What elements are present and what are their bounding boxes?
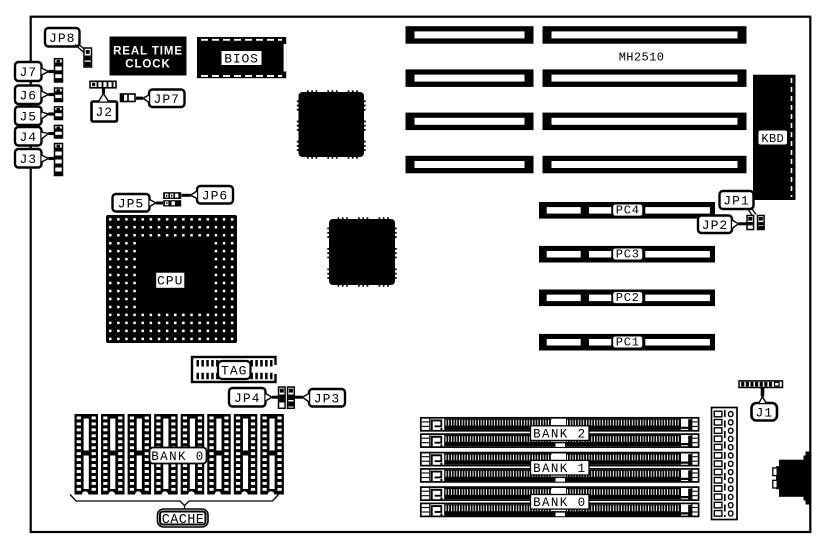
svg-text:BANK 2: BANK 2 xyxy=(533,427,586,441)
svg-text:J4: J4 xyxy=(19,130,37,145)
svg-text:BANK 0: BANK 0 xyxy=(533,496,586,510)
svg-text:PC3: PC3 xyxy=(616,248,640,262)
svg-text:CLOCK: CLOCK xyxy=(125,59,170,71)
svg-text:PC1: PC1 xyxy=(616,336,640,350)
svg-text:KBD: KBD xyxy=(761,132,784,146)
svg-text:J7: J7 xyxy=(19,65,37,80)
svg-text:JP2: JP2 xyxy=(702,218,728,233)
svg-text:BANK 1: BANK 1 xyxy=(533,462,586,476)
svg-text:BANK 0: BANK 0 xyxy=(151,450,204,464)
svg-text:JP4: JP4 xyxy=(234,391,260,406)
svg-text:PC2: PC2 xyxy=(616,291,640,305)
svg-text:REAL TIME: REAL TIME xyxy=(113,46,183,58)
svg-text:JP7: JP7 xyxy=(154,92,180,107)
svg-text:BIOS: BIOS xyxy=(224,52,258,67)
svg-text:J3: J3 xyxy=(19,152,37,167)
svg-text:JP5: JP5 xyxy=(118,196,144,211)
svg-text:CACHE: CACHE xyxy=(162,513,205,528)
svg-text:J1: J1 xyxy=(755,405,773,420)
svg-text:J6: J6 xyxy=(19,88,37,103)
svg-text:CPU: CPU xyxy=(157,274,183,289)
svg-text:J2: J2 xyxy=(95,105,113,120)
svg-text:MH2510: MH2510 xyxy=(619,51,665,65)
svg-text:JP8: JP8 xyxy=(49,31,75,46)
svg-text:JP3: JP3 xyxy=(314,391,340,406)
svg-text:TAG: TAG xyxy=(221,364,247,379)
svg-text:J5: J5 xyxy=(19,109,37,124)
svg-text:JP6: JP6 xyxy=(202,188,228,203)
svg-text:JP1: JP1 xyxy=(723,194,749,209)
svg-text:PC4: PC4 xyxy=(616,204,640,218)
